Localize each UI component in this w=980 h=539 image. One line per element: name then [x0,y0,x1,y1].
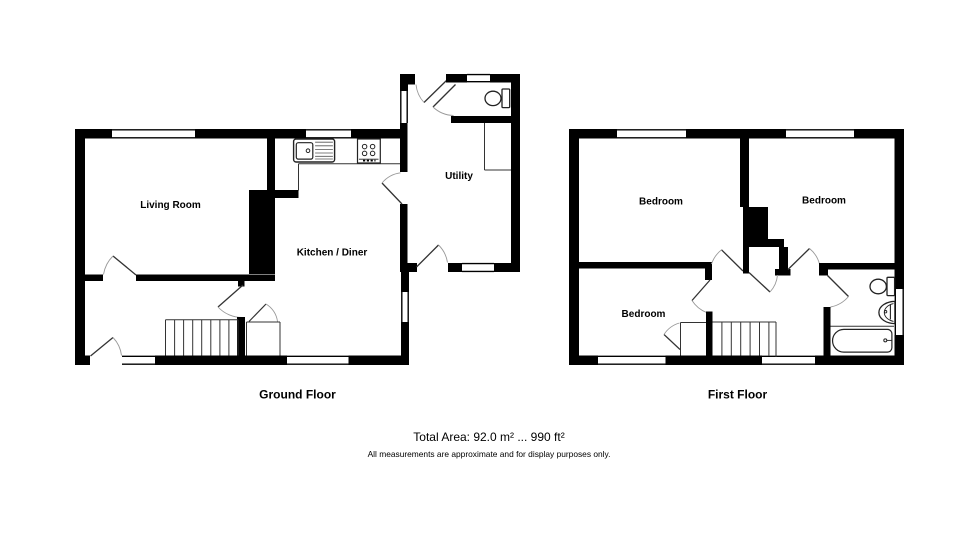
svg-text:Kitchen / Diner: Kitchen / Diner [297,248,368,259]
svg-text:Bedroom: Bedroom [802,196,846,207]
svg-text:Bedroom: Bedroom [639,197,683,208]
svg-text:All measurements are approxima: All measurements are approximate and for… [368,449,611,459]
svg-text:First Floor: First Floor [708,388,768,402]
svg-text:Total Area: 92.0 m² ... 990 ft: Total Area: 92.0 m² ... 990 ft² [413,430,564,444]
svg-text:Living Room: Living Room [140,200,201,211]
svg-text:Bedroom: Bedroom [622,309,666,320]
svg-text:Utility: Utility [445,171,473,182]
svg-text:Ground Floor: Ground Floor [259,388,336,402]
